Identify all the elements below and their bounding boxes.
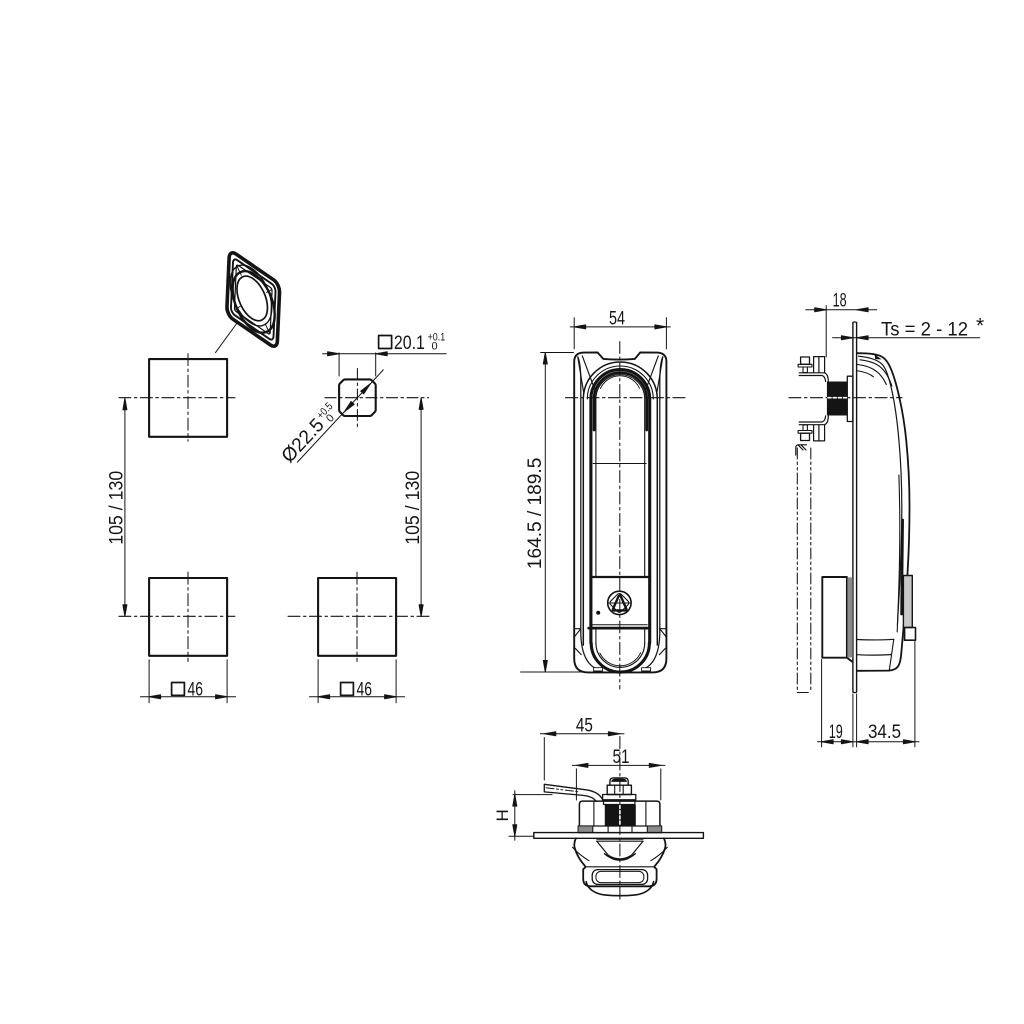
svg-text:19: 19 <box>829 721 843 743</box>
svg-text:0: 0 <box>432 341 438 353</box>
svg-text:54: 54 <box>609 308 625 330</box>
svg-text:105 / 130: 105 / 130 <box>106 471 128 545</box>
svg-text:H: H <box>493 809 512 821</box>
svg-text:Ts = 2 - 12: Ts = 2 - 12 <box>881 318 968 340</box>
svg-text:20.1: 20.1 <box>394 332 425 354</box>
svg-text:51: 51 <box>613 746 630 768</box>
svg-text:45: 45 <box>576 715 593 737</box>
svg-text:18: 18 <box>833 290 847 312</box>
svg-text:*: * <box>976 315 984 338</box>
svg-text:34.5: 34.5 <box>868 721 901 743</box>
svg-text:46: 46 <box>357 678 373 700</box>
svg-text:46: 46 <box>188 678 204 700</box>
svg-text:105 / 130: 105 / 130 <box>402 471 424 545</box>
svg-text:164.5 / 189.5: 164.5 / 189.5 <box>524 458 546 570</box>
